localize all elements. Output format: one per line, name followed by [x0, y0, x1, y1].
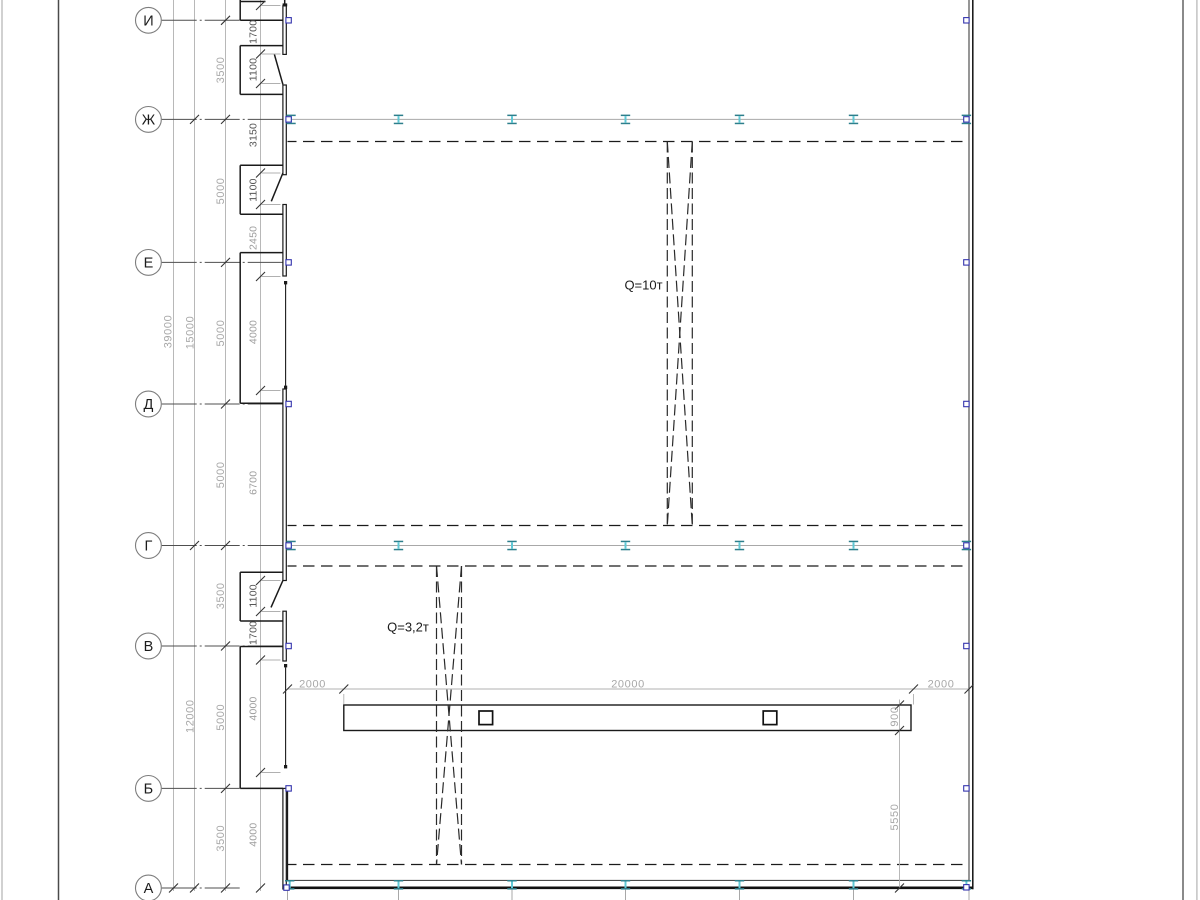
- svg-text:5000: 5000: [215, 704, 227, 731]
- svg-text:И: И: [143, 13, 153, 29]
- svg-text:5000: 5000: [215, 177, 227, 204]
- svg-text:4000: 4000: [247, 696, 259, 720]
- svg-text:1700: 1700: [247, 20, 259, 44]
- svg-text:3500: 3500: [215, 56, 227, 83]
- svg-text:1100: 1100: [247, 178, 259, 201]
- svg-text:3150: 3150: [247, 123, 259, 147]
- svg-text:5000: 5000: [215, 461, 227, 488]
- svg-text:12000: 12000: [185, 699, 197, 733]
- svg-text:Г: Г: [144, 539, 152, 555]
- svg-text:Б: Б: [144, 781, 154, 797]
- svg-text:2000: 2000: [928, 679, 955, 691]
- svg-text:В: В: [144, 639, 154, 655]
- svg-text:3500: 3500: [215, 582, 227, 609]
- svg-text:2450: 2450: [247, 226, 259, 250]
- svg-text:1100: 1100: [247, 584, 259, 607]
- svg-text:900: 900: [889, 706, 901, 726]
- svg-text:4000: 4000: [247, 823, 259, 847]
- svg-text:А: А: [144, 881, 154, 897]
- svg-text:2000: 2000: [299, 679, 326, 691]
- svg-text:1100: 1100: [247, 58, 259, 81]
- svg-text:Q=3,2т: Q=3,2т: [387, 620, 429, 635]
- svg-text:1700: 1700: [247, 621, 259, 645]
- svg-text:3500: 3500: [215, 825, 227, 852]
- svg-text:Ж: Ж: [142, 112, 156, 128]
- svg-text:Q=10т: Q=10т: [624, 278, 662, 293]
- svg-text:15000: 15000: [185, 316, 197, 350]
- svg-text:4000: 4000: [247, 320, 259, 344]
- svg-text:Е: Е: [144, 255, 154, 271]
- svg-text:5550: 5550: [889, 804, 901, 831]
- svg-text:6700: 6700: [247, 471, 259, 495]
- svg-text:20000: 20000: [611, 679, 645, 691]
- svg-text:Д: Д: [143, 397, 153, 413]
- svg-text:5000: 5000: [215, 320, 227, 347]
- svg-text:39000: 39000: [163, 315, 175, 349]
